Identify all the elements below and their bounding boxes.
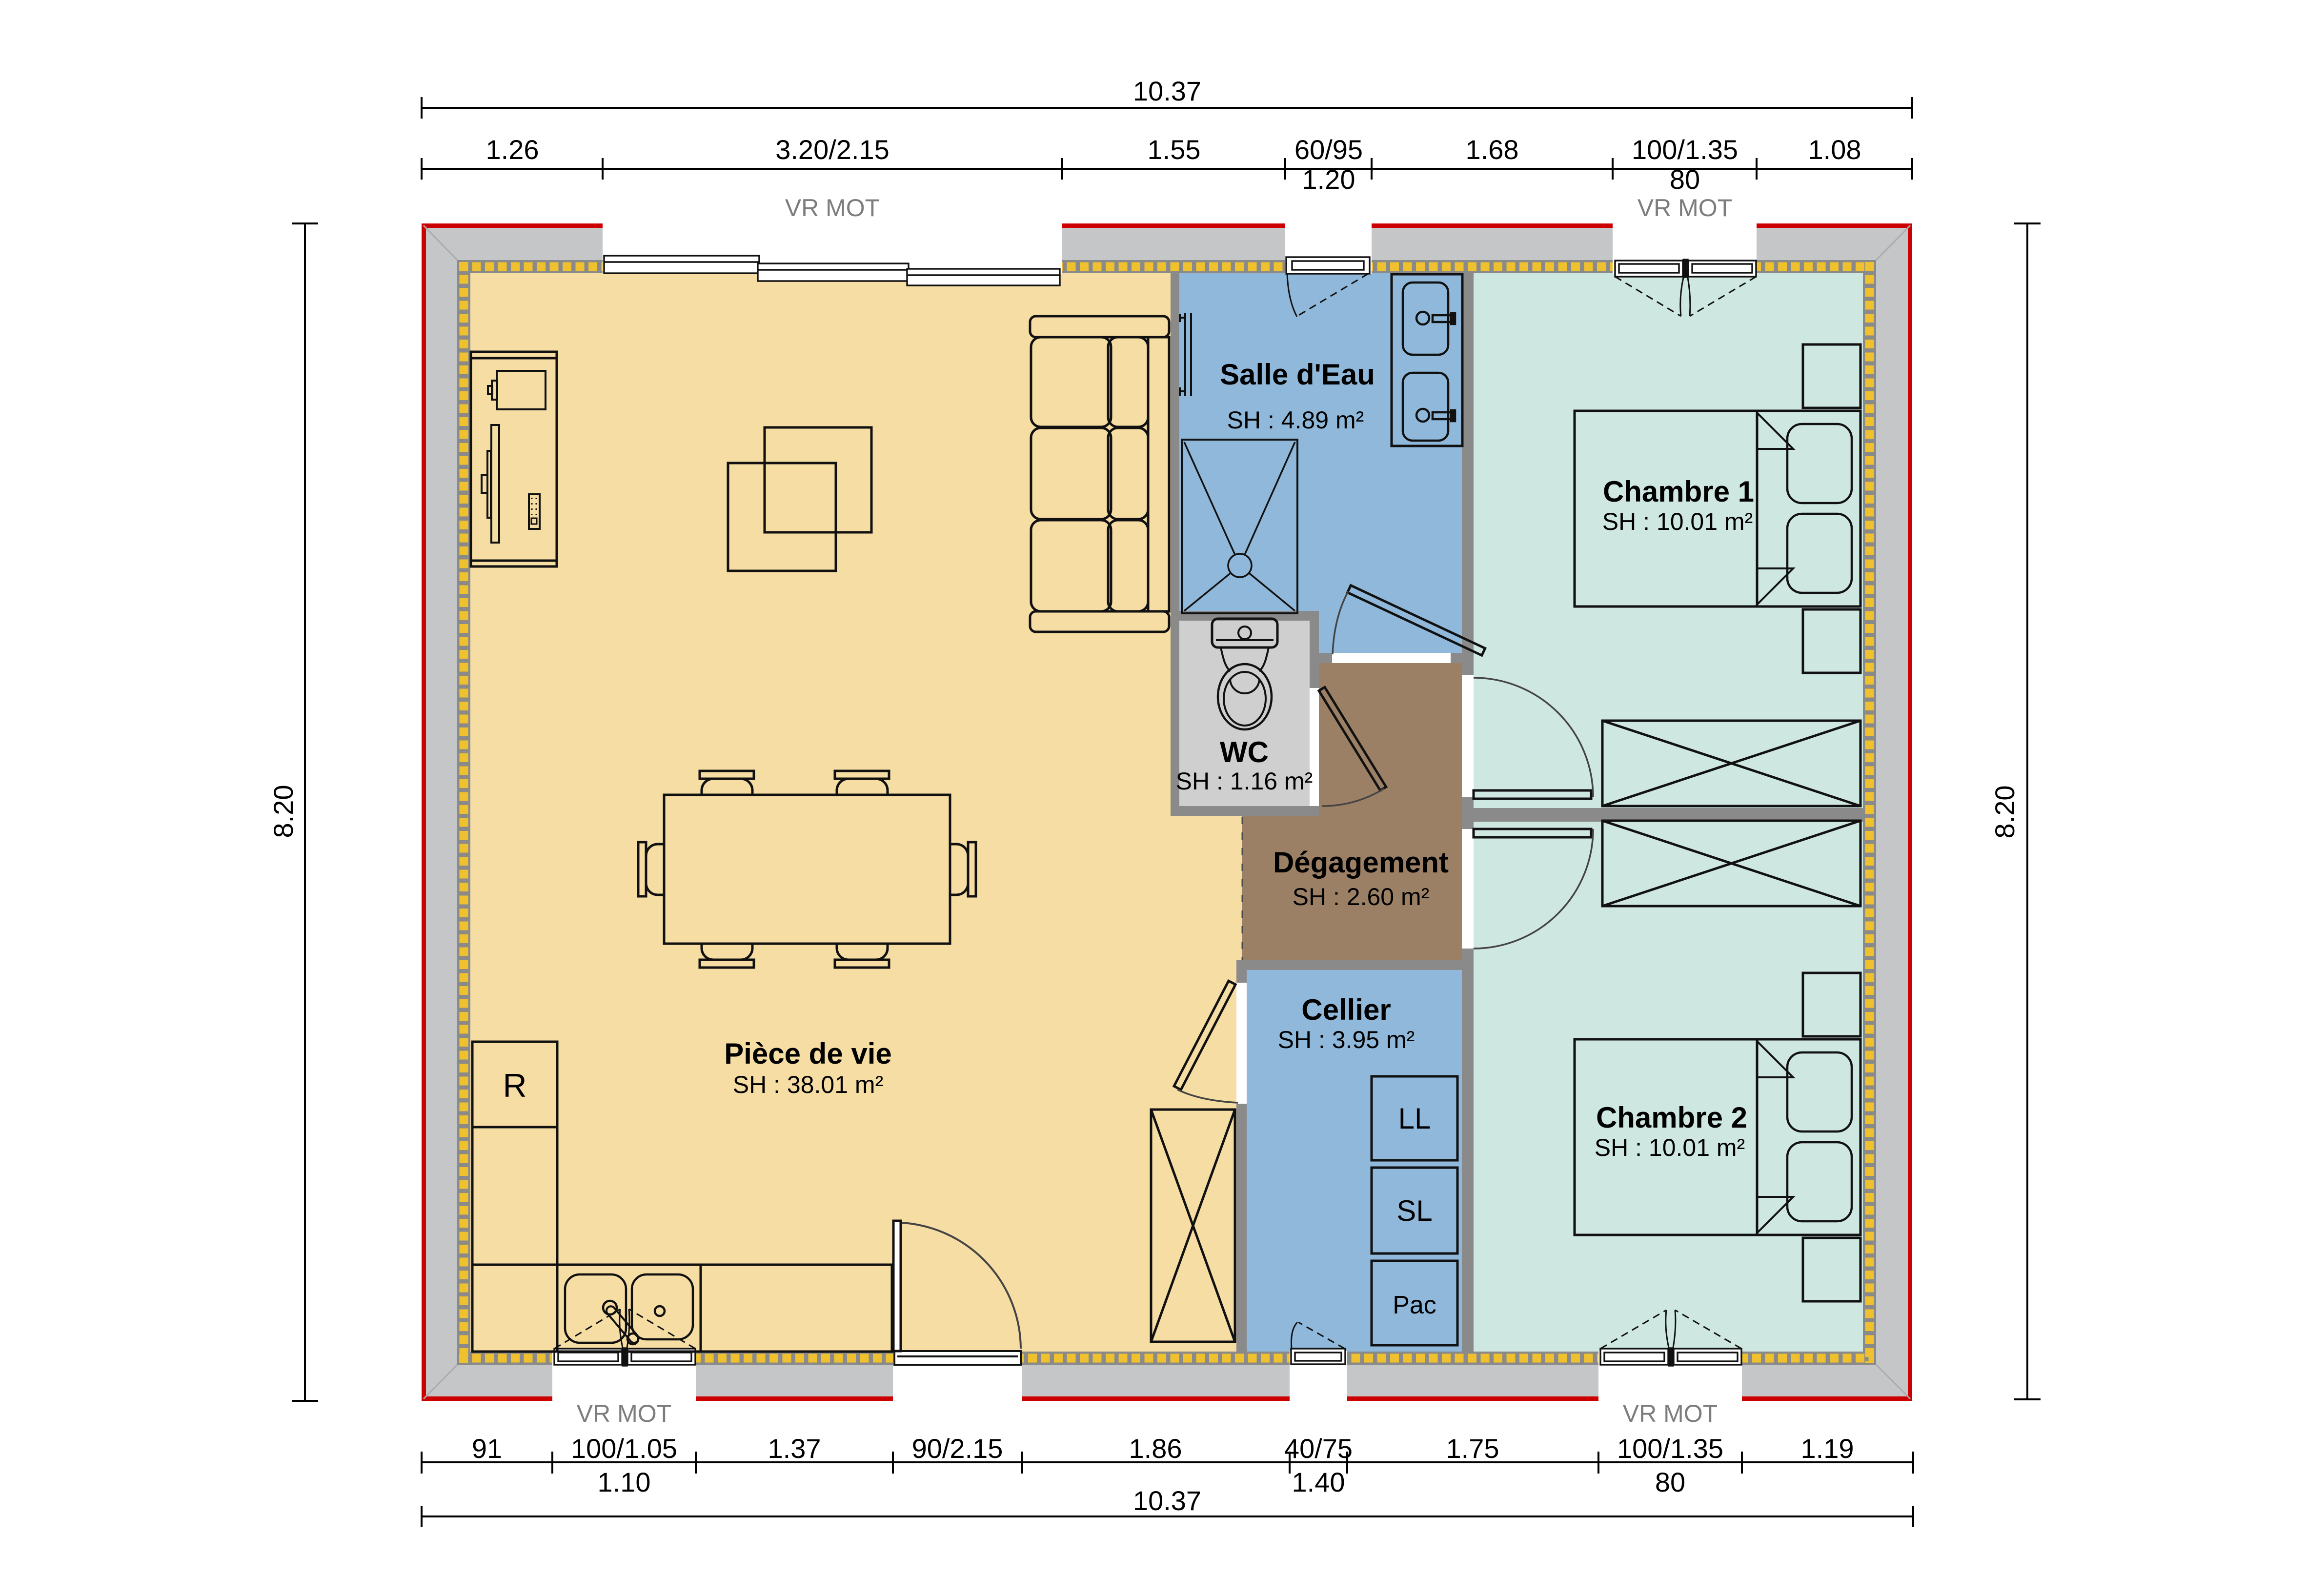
svg-text:1.40: 1.40: [1292, 1467, 1345, 1497]
svg-text:80: 80: [1655, 1467, 1685, 1497]
svg-text:100/1.35: 100/1.35: [1632, 134, 1738, 165]
svg-text:1.86: 1.86: [1129, 1433, 1182, 1464]
svg-text:100/1.05: 100/1.05: [571, 1433, 677, 1464]
svg-text:SH : 10.01 m²: SH : 10.01 m²: [1595, 1134, 1745, 1161]
svg-text:Pac: Pac: [1393, 1291, 1436, 1319]
svg-text:SH : 38.01 m²: SH : 38.01 m²: [733, 1071, 883, 1098]
svg-text:10.37: 10.37: [1133, 76, 1201, 106]
svg-text:VR MOT: VR MOT: [1638, 194, 1732, 222]
svg-text:8.20: 8.20: [1989, 786, 2020, 839]
svg-text:Salle d'Eau: Salle d'Eau: [1220, 358, 1375, 391]
svg-text:SH : 1.16 m²: SH : 1.16 m²: [1176, 768, 1313, 795]
svg-text:3.20/2.15: 3.20/2.15: [775, 134, 890, 165]
svg-text:Chambre 2: Chambre 2: [1596, 1101, 1747, 1134]
svg-text:1.55: 1.55: [1148, 134, 1201, 165]
svg-text:Dégagement: Dégagement: [1273, 846, 1449, 879]
svg-text:10.37: 10.37: [1133, 1485, 1201, 1516]
svg-text:1.10: 1.10: [598, 1467, 651, 1497]
svg-text:91: 91: [472, 1433, 502, 1464]
svg-text:Chambre 1: Chambre 1: [1603, 475, 1754, 508]
svg-text:SH : 10.01 m²: SH : 10.01 m²: [1602, 508, 1753, 535]
svg-text:8.20: 8.20: [268, 785, 299, 838]
svg-text:1.26: 1.26: [486, 134, 539, 165]
svg-text:WC: WC: [1220, 736, 1269, 768]
svg-text:VR MOT: VR MOT: [577, 1400, 671, 1427]
svg-text:SH : 4.89 m²: SH : 4.89 m²: [1227, 406, 1364, 434]
svg-text:100/1.35: 100/1.35: [1617, 1433, 1723, 1464]
svg-text:SH : 3.95 m²: SH : 3.95 m²: [1278, 1026, 1415, 1053]
svg-text:SH : 2.60 m²: SH : 2.60 m²: [1293, 883, 1430, 910]
svg-text:1.37: 1.37: [768, 1433, 821, 1464]
svg-text:R: R: [503, 1067, 526, 1104]
svg-text:1.68: 1.68: [1466, 134, 1519, 165]
svg-text:LL: LL: [1398, 1102, 1431, 1135]
svg-text:40/75: 40/75: [1284, 1433, 1353, 1464]
svg-text:1.19: 1.19: [1801, 1433, 1854, 1464]
svg-text:Pièce de vie: Pièce de vie: [724, 1037, 892, 1070]
svg-text:1.20: 1.20: [1302, 164, 1355, 195]
svg-text:60/95: 60/95: [1294, 134, 1363, 165]
svg-text:Cellier: Cellier: [1301, 993, 1391, 1026]
svg-text:1.75: 1.75: [1446, 1433, 1499, 1464]
svg-text:90/2.15: 90/2.15: [912, 1433, 1003, 1464]
svg-text:VR MOT: VR MOT: [1623, 1400, 1718, 1427]
svg-text:SL: SL: [1396, 1194, 1432, 1227]
svg-text:VR MOT: VR MOT: [785, 194, 880, 222]
svg-text:1.08: 1.08: [1808, 134, 1861, 165]
svg-text:80: 80: [1670, 164, 1700, 195]
